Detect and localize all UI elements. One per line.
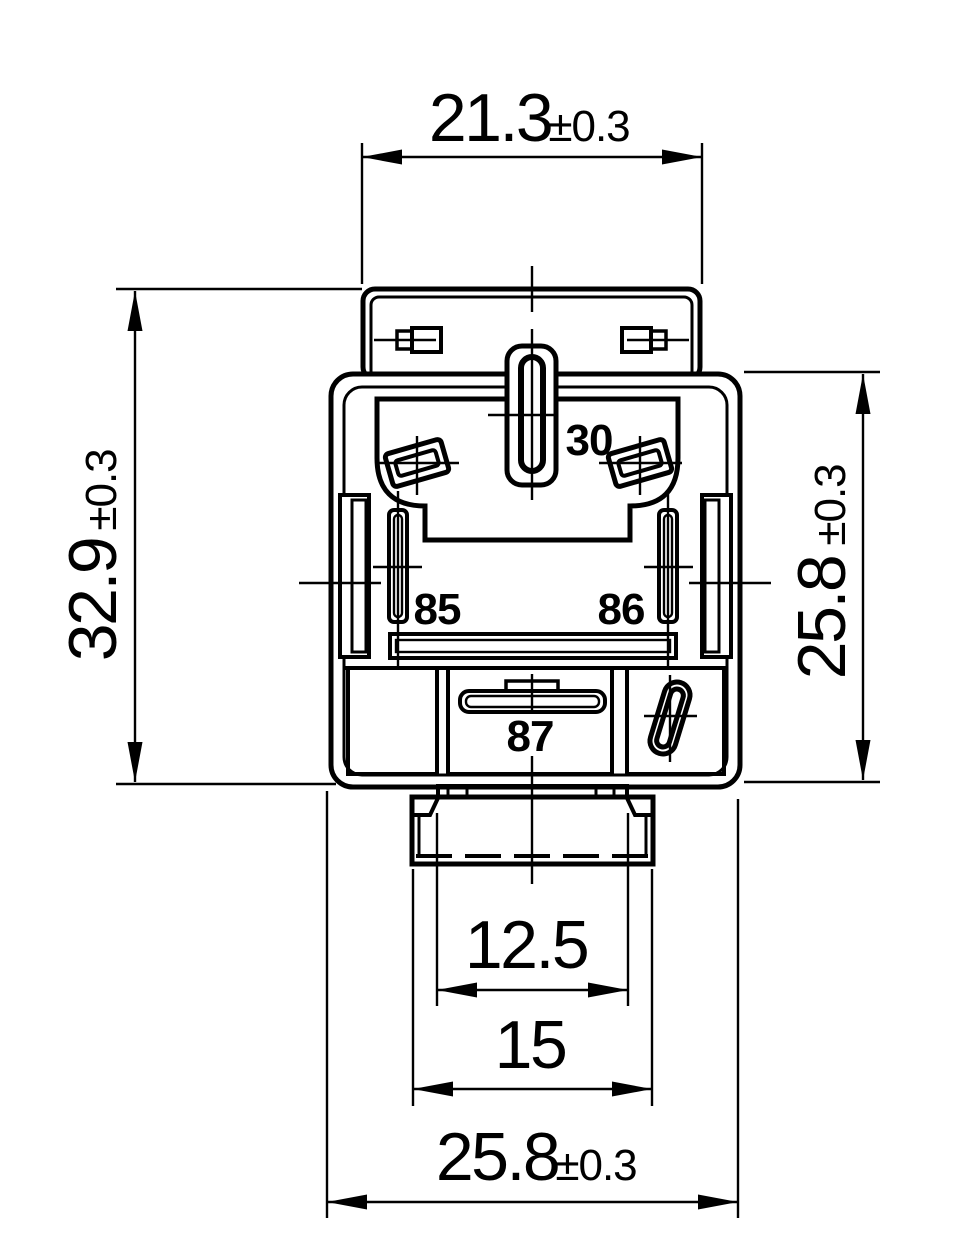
- dim-body-height-tolerance: ±0.3: [806, 464, 855, 545]
- pin-85-label: 85: [414, 585, 461, 634]
- arrow-left: [413, 1082, 453, 1097]
- side-slot-left: [299, 495, 381, 657]
- arrow-left: [437, 983, 477, 998]
- relay-dimension-drawing: 21.3 ±0.3 32.9 ±0.3 25.8 ±0.3 12.5: [0, 0, 971, 1260]
- arrow-down: [856, 740, 871, 780]
- arrow-down: [128, 742, 143, 782]
- arrow-right: [662, 150, 702, 165]
- dim-top-width-value: 21.3: [429, 80, 551, 156]
- arrow-up: [856, 374, 871, 414]
- contact-bar: [390, 634, 676, 658]
- arrow-left: [327, 1195, 367, 1210]
- dim-flange-width-value: 15: [495, 1007, 566, 1083]
- pin-30-label: 30: [566, 416, 613, 465]
- dim-body-height-value: 25.8: [784, 557, 860, 679]
- dim-bottom-width-value: 25.8: [436, 1119, 558, 1195]
- arrow-left: [362, 150, 402, 165]
- arrow-right: [698, 1195, 738, 1210]
- pin-86-label: 86: [598, 585, 645, 634]
- dim-top-width: 21.3 ±0.3: [362, 80, 702, 284]
- pin-87-label: 87: [507, 712, 554, 761]
- dim-overall-height: 32.9 ±0.3: [55, 289, 362, 784]
- arrow-right: [612, 1082, 652, 1097]
- arrow-right: [588, 983, 628, 998]
- dim-overall-height-value: 32.9: [55, 539, 131, 661]
- dim-flange-width: 15: [413, 869, 652, 1106]
- dim-top-width-tolerance: ±0.3: [548, 102, 629, 151]
- dim-key-width-value: 12.5: [465, 907, 587, 983]
- dim-body-height: 25.8 ±0.3: [744, 372, 880, 782]
- arrow-up: [128, 291, 143, 331]
- technical-drawing-canvas: 21.3 ±0.3 32.9 ±0.3 25.8 ±0.3 12.5: [0, 0, 971, 1260]
- dim-bottom-width-tolerance: ±0.3: [555, 1141, 636, 1190]
- side-slot-right: [689, 495, 771, 657]
- dim-overall-height-tolerance: ±0.3: [77, 449, 126, 530]
